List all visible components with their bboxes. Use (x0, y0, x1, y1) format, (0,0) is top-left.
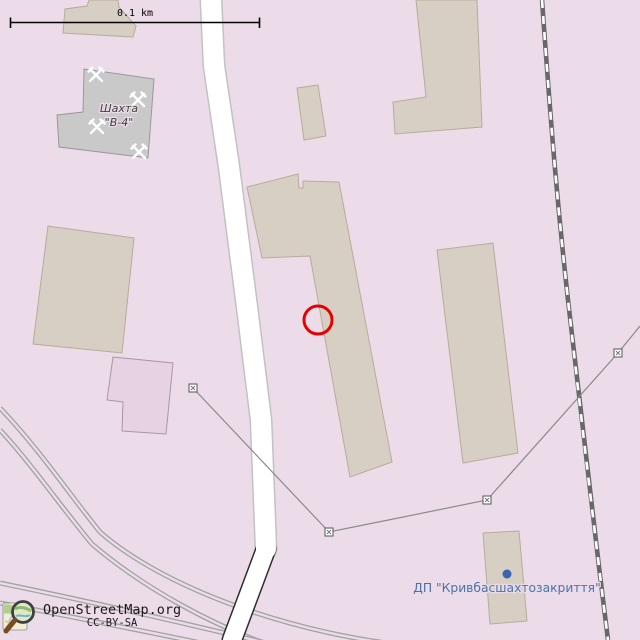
poi-dot (503, 570, 512, 579)
gate-marker (614, 349, 622, 357)
openstreetmap-logo-icon (2, 598, 38, 634)
gate-marker (189, 384, 197, 392)
enterprise-name-label: ДП "Кривбасшахтозакриття" (413, 581, 601, 595)
license-text: CC-BY-SA (87, 618, 138, 629)
scale-bar-label: 0.1 km (117, 8, 153, 19)
mine-name-label-line1: Шахта (100, 102, 138, 115)
building-left-large (33, 226, 134, 353)
attribution: OpenStreetMap.org CC-BY-SA (2, 598, 181, 634)
openstreetmap-link[interactable]: OpenStreetMap.org (43, 603, 181, 617)
gate-marker (483, 496, 491, 504)
map-viewport[interactable]: Шахта "В-4" ДП "Кривбасшахтозакриття" 0.… (0, 0, 640, 640)
mine-name-label-line2: "В-4" (105, 116, 134, 129)
gate-marker (325, 528, 333, 536)
map-canvas: Шахта "В-4" ДП "Кривбасшахтозакриття" 0.… (0, 0, 640, 640)
